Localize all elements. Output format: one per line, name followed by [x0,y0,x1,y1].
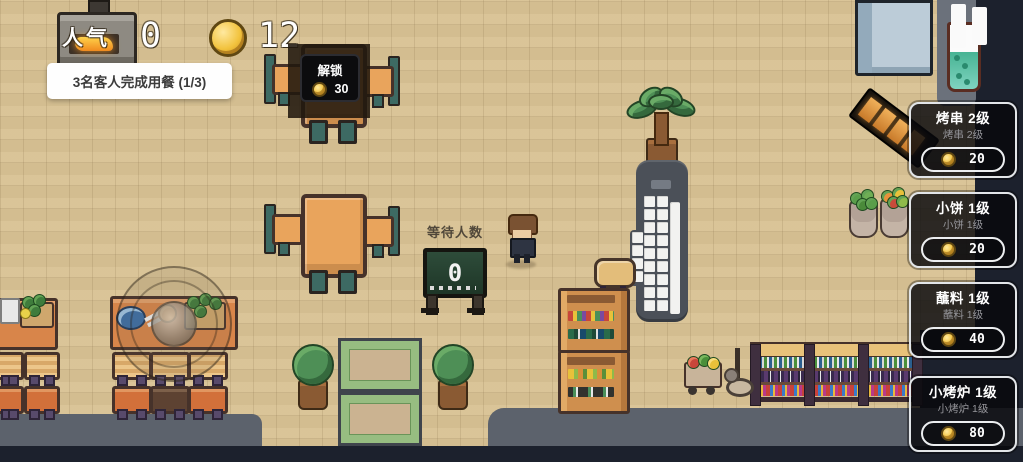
small-table [112,386,152,414]
night-void-bottom [0,446,1023,462]
pause-icon [951,4,966,48]
coin-icon [941,242,956,257]
card-title: 小烤炉 1级 [929,386,997,400]
shop-card-skewer[interactable]: 烤串 2级 烤串 2级 20 [909,102,1017,178]
shop-card-small-oven[interactable]: 小烤炉 1级 小烤炉 1级 80 [909,376,1017,452]
fruit-sack-mixed [879,186,908,236]
small-table [24,386,60,414]
popularity-label: 人气 [62,22,110,52]
food-shelf-bottom [558,350,630,414]
card-cost: 40 [969,332,985,347]
card-cost: 80 [969,426,985,441]
pause-icon [972,7,987,45]
register [0,298,20,324]
buy-button[interactable]: 40 [921,327,1005,352]
card-title: 蘸料 1级 [936,292,990,306]
card-title: 烤串 2级 [936,112,990,126]
shop-card-sauce[interactable]: 蘸料 1级 蘸料 1级 40 [909,282,1017,358]
potted-plant-right [430,344,472,408]
unlock-panel[interactable]: 解锁 30 [300,54,360,102]
small-table [188,386,228,414]
card-subtitle: 小烤炉 1级 [938,404,989,415]
rug-bottom [338,392,422,446]
small-table [0,386,24,414]
scale-stand [724,348,752,398]
coin-icon [941,152,956,167]
coin-icon [941,426,956,441]
dining-set-middle [260,192,400,296]
vending-machine [636,160,688,322]
dining-table [301,194,367,278]
bottle-shelf [750,342,922,406]
card-subtitle: 烤串 2级 [943,130,983,141]
unlock-overlay[interactable]: 解锁 30 [288,44,370,118]
joystick-knob[interactable] [151,301,197,347]
joystick[interactable] [116,266,232,382]
rug-top [338,338,422,392]
fridge [855,0,933,76]
card-subtitle: 蘸料 1级 [943,310,983,321]
waiting-label: 等待人数 [427,222,483,241]
toast-notification: 3名客人完成用餐 (1/3) [47,63,232,99]
unlock-label: 解锁 [317,60,342,79]
card-cost: 20 [969,152,985,167]
stool [594,258,632,290]
shop-card-flatbread[interactable]: 小饼 1级 小饼 1级 20 [909,192,1017,268]
game-stage: 人气 0 12 3名客人完成用餐 (1/3) 解锁 30 等待人数 0 [0,0,1023,462]
small-table [24,352,60,380]
card-title: 小饼 1级 [936,202,990,216]
produce-cart [684,354,722,396]
buy-button[interactable]: 20 [921,237,1005,262]
card-cost: 20 [969,242,985,257]
pause-button[interactable] [949,2,991,50]
popularity-value: 0 [140,16,161,56]
waiting-sign: 0 [421,246,487,312]
coin-icon [209,19,247,57]
coin-icon [312,82,327,97]
unlock-cost: 30 [335,82,349,96]
small-table [150,386,190,414]
food-shelf-top [558,288,630,354]
card-subtitle: 小饼 1级 [943,220,983,231]
buy-button[interactable]: 20 [921,147,1005,172]
fruit-sack-green [848,188,877,236]
waiting-count: 0 [448,259,462,287]
player-character [502,212,540,270]
palm-tree [626,88,692,168]
coin-icon [941,332,956,347]
potted-plant-left [290,344,332,408]
small-table [0,352,24,380]
buy-button[interactable]: 80 [921,421,1005,446]
